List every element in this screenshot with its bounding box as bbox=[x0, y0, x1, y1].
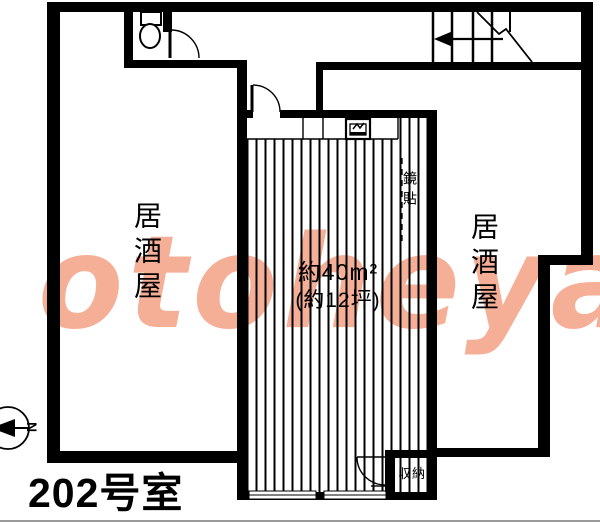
sink-base bbox=[350, 132, 366, 135]
room-number-title: 202号室 bbox=[28, 473, 183, 514]
sink-icon bbox=[346, 119, 370, 139]
mirror-label: 鏡貼 bbox=[403, 171, 417, 211]
vestibule-wall bbox=[316, 62, 323, 118]
entry-door-swing bbox=[253, 85, 280, 112]
toilet-bowl bbox=[140, 24, 160, 48]
toilet-door-swing bbox=[171, 30, 199, 58]
floorplan-image: 居酒屋 居酒屋 約40m² (約12坪) 鏡貼 収納 202号室 N otohe… bbox=[0, 0, 600, 522]
toilet-left-wall bbox=[124, 8, 133, 68]
toilet-right-wall bbox=[163, 8, 172, 32]
stair-arrow-head bbox=[434, 31, 453, 47]
stair-break-line bbox=[477, 12, 532, 62]
toilet-icon bbox=[140, 12, 161, 48]
stairs-icon bbox=[433, 12, 532, 62]
counter bbox=[247, 118, 398, 139]
bottom-right-wall bbox=[437, 448, 550, 457]
bottom-left-wall bbox=[47, 451, 247, 463]
hall-wall-left bbox=[124, 60, 247, 68]
hall-wall-right bbox=[316, 62, 581, 70]
toilet-door bbox=[170, 30, 199, 58]
unit-top-wall-right bbox=[280, 110, 433, 118]
watermark-text: otoheya bbox=[38, 220, 600, 348]
entry-door bbox=[252, 85, 280, 112]
storage-label: 収納 bbox=[394, 467, 430, 480]
north-label: N bbox=[25, 422, 39, 432]
